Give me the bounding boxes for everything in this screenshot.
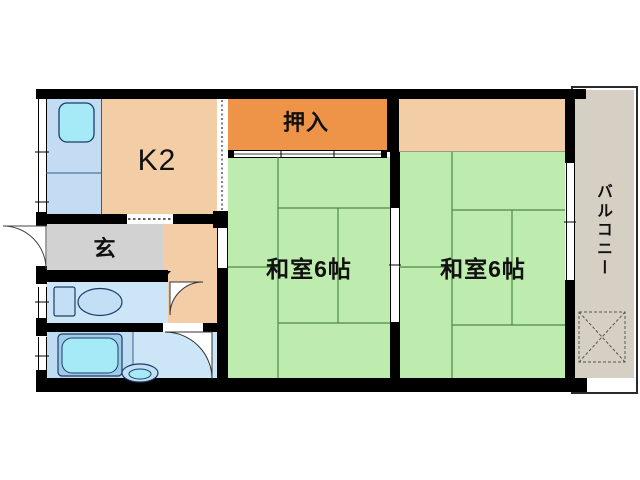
wall-toilet-bath-a	[36, 323, 163, 332]
entrance-opening	[35, 226, 47, 266]
room-label-kitchen: K2	[138, 144, 177, 178]
wall-genkan-top-b	[173, 214, 213, 224]
room-label-oshiire: 押入	[283, 105, 329, 137]
wall-bottom	[36, 378, 587, 392]
oshiire-door-nub-left	[228, 150, 234, 158]
room-label-genkan: 玄	[93, 231, 116, 263]
hallway-fusuma-door	[217, 228, 228, 268]
floorplan-canvas: K2 押入 和室6帖 和室6帖 玄 バルコニー	[0, 0, 640, 480]
wall-top	[36, 89, 586, 99]
kitchen-counter	[46, 99, 102, 214]
room-closet-right	[399, 99, 565, 152]
room-label-washitsu-left: 和室6帖	[266, 250, 352, 284]
wall-genkan-toilet	[36, 270, 168, 282]
toilet-window	[38, 287, 47, 318]
kitchen-sliding-door	[127, 214, 173, 224]
room-label-washitsu-right: 和室6帖	[440, 250, 526, 284]
bathtub-zone	[46, 332, 133, 378]
wall-left-seg4	[36, 370, 47, 382]
bathroom-window	[38, 337, 47, 373]
wall-oshiire-right	[387, 89, 399, 152]
kitchen-window	[38, 99, 47, 213]
hallway	[163, 224, 217, 323]
oshiire-door-nub-right	[381, 150, 387, 158]
oshiire-sliding-door	[228, 150, 387, 158]
kitchen-partition	[217, 99, 228, 211]
wall-between-rooms-lower	[390, 322, 400, 392]
wall-right-lower	[565, 280, 575, 392]
room-toilet	[46, 282, 168, 323]
wall-right-upper	[565, 89, 575, 163]
rooms-sliding-door	[390, 208, 400, 322]
wall-genkan-top-a	[46, 214, 127, 224]
wall-junction-block	[213, 211, 228, 228]
room-label-balcony: バルコニー	[590, 183, 614, 278]
wall-between-rooms-upper	[390, 152, 400, 208]
wall-washitsu-left-side	[217, 268, 228, 392]
balcony-window	[566, 163, 575, 280]
